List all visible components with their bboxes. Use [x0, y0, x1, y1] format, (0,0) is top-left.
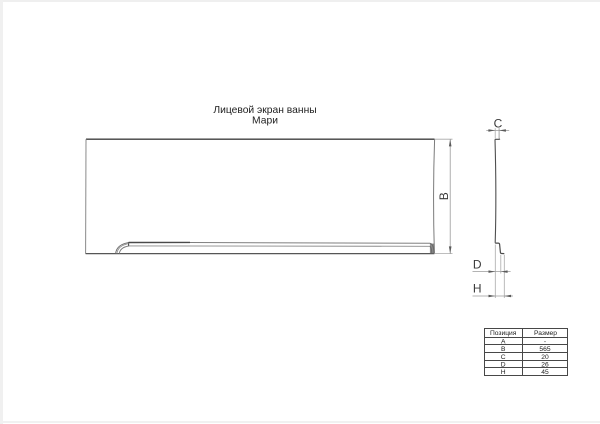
svg-text:20: 20	[541, 354, 549, 361]
svg-text:-: -	[544, 338, 546, 345]
svg-text:B: B	[501, 346, 506, 353]
svg-text:Лицевой экран ванны: Лицевой экран ванны	[213, 105, 316, 116]
svg-text:565: 565	[539, 346, 550, 353]
svg-text:H: H	[473, 282, 482, 296]
svg-text:A: A	[501, 338, 506, 345]
svg-text:45: 45	[541, 369, 549, 376]
svg-text:C: C	[494, 117, 503, 131]
svg-text:D: D	[473, 258, 482, 272]
svg-text:Размер: Размер	[534, 330, 557, 337]
svg-text:H: H	[501, 369, 506, 376]
svg-text:Позиция: Позиция	[490, 330, 517, 337]
svg-text:B: B	[437, 192, 451, 200]
svg-text:26: 26	[541, 361, 549, 368]
svg-text:D: D	[501, 361, 506, 368]
svg-text:C: C	[501, 354, 506, 361]
svg-text:Мари: Мари	[252, 116, 278, 127]
